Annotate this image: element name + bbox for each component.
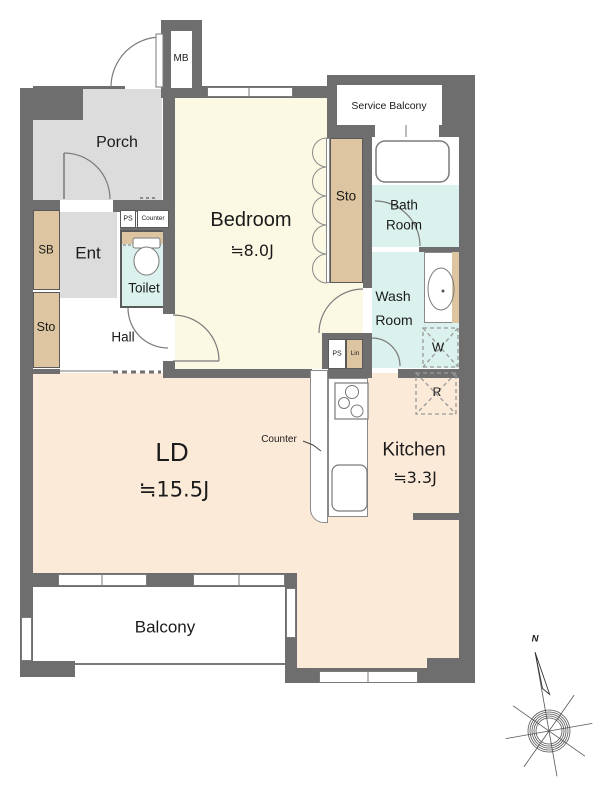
washroom-basin — [428, 268, 454, 310]
kitchen-sink — [332, 465, 367, 511]
pipe-space-entry-label: PS — [123, 216, 132, 223]
bathtub — [376, 141, 449, 182]
kitchen-label: Kitchen — [382, 441, 445, 460]
linen-label: Lin — [351, 351, 360, 358]
living-dining-size-label: ≒15.5J — [139, 480, 210, 501]
bedroom-door-arc — [173, 315, 219, 361]
living-dining-label: LD — [155, 439, 188, 465]
compass-rose — [492, 645, 601, 784]
front-door-arc — [64, 153, 110, 199]
entry-door-arc — [111, 37, 161, 87]
porch-label: Porch — [96, 135, 138, 151]
kitchen-size-label: ≒3.3J — [393, 470, 437, 486]
bedroom-closet-label: Sto — [336, 189, 356, 203]
plan-linework — [0, 0, 608, 800]
service-balcony-label: Service Balcony — [351, 101, 426, 112]
bedroom-washroom-door-arc — [319, 289, 363, 333]
bathroom-label-line2: Room — [386, 218, 422, 232]
meter-box-label: MB — [174, 54, 189, 64]
kitchen-counter-label: Counter — [261, 435, 297, 445]
compass-north-label: N — [532, 634, 539, 644]
pipe-space-bedroom-label: PS — [332, 351, 341, 358]
washroom-door-arc — [372, 338, 400, 366]
washroom-label-line1: Wash — [375, 289, 410, 303]
toilet-label: Toilet — [128, 281, 160, 295]
washroom-label-line2: Room — [375, 313, 412, 327]
floor-plan: Porch MB Service Balcony Bedroom ≒8.0J S… — [0, 0, 608, 800]
hall-storage-label: Sto — [37, 321, 56, 334]
compass-needle — [535, 651, 550, 696]
washer-space-label: W — [432, 341, 444, 354]
entry-door-leaf — [156, 34, 163, 87]
closet-folding-doors — [313, 138, 328, 283]
bedroom-label: Bedroom — [210, 210, 291, 230]
refrigerator-space-label: R — [433, 386, 442, 398]
shoe-box-label: SB — [38, 245, 53, 257]
basin-faucet — [442, 290, 445, 293]
balcony-label: Balcony — [135, 619, 195, 636]
counter-leader-line — [303, 441, 321, 451]
toilet-bowl — [134, 247, 159, 275]
bathroom-label-line1: Bath — [390, 198, 418, 212]
entry-counter-label: Counter — [141, 216, 164, 223]
hall-label: Hall — [111, 330, 134, 344]
entrance-label: Ent — [75, 245, 101, 262]
bedroom-size-label: ≒8.0J — [230, 243, 274, 259]
